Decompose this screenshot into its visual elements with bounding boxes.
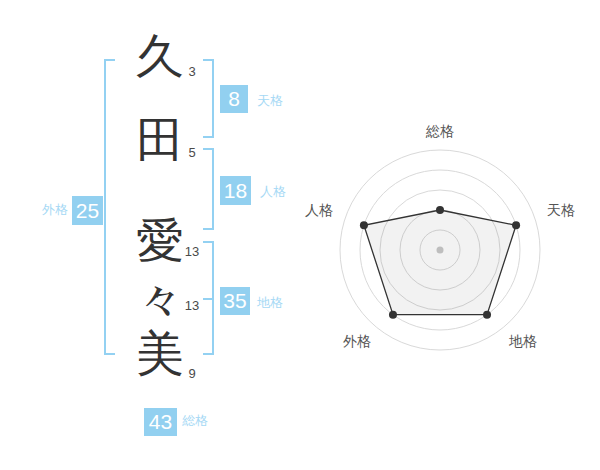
stroke-count: 13 (181, 245, 203, 258)
name-fortune-panel: 久 田 愛 々 美 3 5 13 13 9 8 天格 18 人格 35 地格 2… (0, 0, 600, 470)
radar-axis-label: 外格 (343, 333, 371, 349)
bracket-chikaku-mid-tick (203, 298, 212, 300)
chikaku-label: 地格 (257, 296, 283, 309)
stroke-count: 3 (181, 65, 203, 78)
radar-axis-label: 総格 (425, 123, 454, 139)
chikaku-value-badge: 35 (220, 287, 250, 315)
bracket-tenkaku (203, 59, 214, 138)
radar-axis-label: 天格 (547, 202, 575, 218)
soukaku-label: 総格 (182, 414, 208, 427)
soukaku-value-badge: 43 (144, 408, 177, 436)
stroke-count: 9 (181, 367, 203, 380)
tenkaku-label: 天格 (257, 94, 283, 107)
jinkaku-value-badge: 18 (220, 176, 251, 205)
bracket-jinkaku (203, 148, 214, 230)
radar-axis-label: 地格 (508, 333, 537, 349)
stroke-count: 5 (181, 146, 203, 159)
gaikaku-label: 外格 (42, 203, 68, 216)
gaikaku-value-badge: 25 (72, 196, 103, 225)
radar-axis-label: 人格 (305, 202, 333, 218)
tenkaku-value-badge: 8 (220, 85, 248, 113)
jinkaku-label: 人格 (260, 185, 286, 198)
bracket-gaikaku (104, 59, 115, 355)
radar-chart: 総格天格地格外格人格 (300, 110, 580, 390)
stroke-count: 13 (181, 299, 203, 312)
